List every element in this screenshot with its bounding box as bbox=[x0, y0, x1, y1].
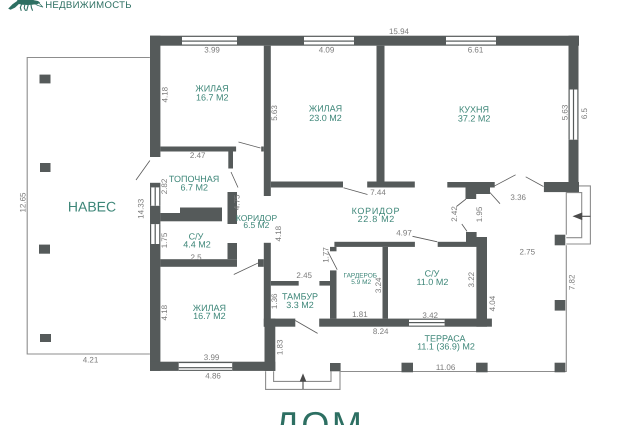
svg-text:4.18: 4.18 bbox=[161, 86, 170, 102]
svg-text:16.7 М2: 16.7 М2 bbox=[196, 92, 229, 102]
svg-text:3.42: 3.42 bbox=[422, 311, 438, 320]
svg-text:4.21: 4.21 bbox=[83, 356, 99, 365]
svg-text:11.1 (36.9) М2: 11.1 (36.9) М2 bbox=[417, 342, 475, 352]
svg-text:22.8 М2: 22.8 М2 bbox=[358, 214, 395, 224]
svg-text:4.75: 4.75 bbox=[233, 194, 242, 210]
svg-text:3.99: 3.99 bbox=[204, 353, 220, 362]
svg-text:15.94: 15.94 bbox=[389, 27, 410, 36]
svg-text:3.3 М2: 3.3 М2 bbox=[286, 300, 314, 310]
svg-text:23.0 М2: 23.0 М2 bbox=[309, 113, 342, 123]
svg-text:7.82: 7.82 bbox=[568, 274, 577, 290]
svg-text:12.65: 12.65 bbox=[19, 192, 28, 213]
svg-text:14.33: 14.33 bbox=[137, 198, 146, 219]
svg-text:1.95: 1.95 bbox=[475, 206, 484, 222]
svg-text:1.75: 1.75 bbox=[160, 232, 169, 248]
svg-text:37.2 М2: 37.2 М2 bbox=[458, 113, 491, 123]
svg-text:6.7 М2: 6.7 М2 bbox=[181, 182, 209, 192]
svg-text:НАВЕС: НАВЕС bbox=[68, 199, 116, 215]
svg-text:3.99: 3.99 bbox=[204, 46, 220, 55]
svg-text:4.4 М2: 4.4 М2 bbox=[183, 240, 211, 250]
svg-text:6.5 М2: 6.5 М2 bbox=[243, 220, 269, 230]
svg-text:4.18: 4.18 bbox=[274, 225, 283, 241]
svg-text:4.04: 4.04 bbox=[488, 295, 497, 311]
svg-text:4.18: 4.18 bbox=[160, 304, 169, 320]
svg-text:5.9 М2: 5.9 М2 bbox=[351, 279, 371, 286]
svg-text:1.83: 1.83 bbox=[275, 339, 284, 355]
svg-text:8.24: 8.24 bbox=[373, 327, 389, 336]
svg-text:4.09: 4.09 bbox=[319, 46, 335, 55]
svg-text:2.75: 2.75 bbox=[520, 247, 536, 256]
svg-text:2.47: 2.47 bbox=[190, 151, 206, 160]
svg-text:2.82: 2.82 bbox=[160, 178, 169, 194]
svg-text:ДОМ: ДОМ bbox=[275, 404, 365, 425]
svg-text:5.63: 5.63 bbox=[270, 105, 279, 121]
svg-text:3.22: 3.22 bbox=[467, 271, 476, 287]
svg-text:2.45: 2.45 bbox=[296, 271, 312, 280]
svg-text:11.06: 11.06 bbox=[436, 363, 456, 372]
svg-text:3.36: 3.36 bbox=[510, 193, 526, 202]
svg-text:2.42: 2.42 bbox=[450, 206, 459, 222]
svg-text:5.63: 5.63 bbox=[561, 104, 570, 120]
svg-text:1.77: 1.77 bbox=[322, 247, 331, 263]
svg-text:1.81: 1.81 bbox=[352, 310, 368, 319]
svg-text:6.61: 6.61 bbox=[468, 46, 484, 55]
svg-text:16.7 М2: 16.7 М2 bbox=[193, 311, 226, 321]
svg-text:НЕДВИЖИМОСТЬ: НЕДВИЖИМОСТЬ bbox=[45, 0, 132, 11]
svg-text:6.5: 6.5 bbox=[580, 107, 589, 119]
svg-text:7.44: 7.44 bbox=[370, 188, 386, 197]
svg-text:11.0 М2: 11.0 М2 bbox=[416, 277, 448, 287]
svg-text:4.86: 4.86 bbox=[205, 372, 221, 381]
svg-text:2.5: 2.5 bbox=[190, 253, 202, 262]
svg-text:4.97: 4.97 bbox=[396, 229, 412, 238]
svg-text:1.36: 1.36 bbox=[270, 293, 279, 309]
